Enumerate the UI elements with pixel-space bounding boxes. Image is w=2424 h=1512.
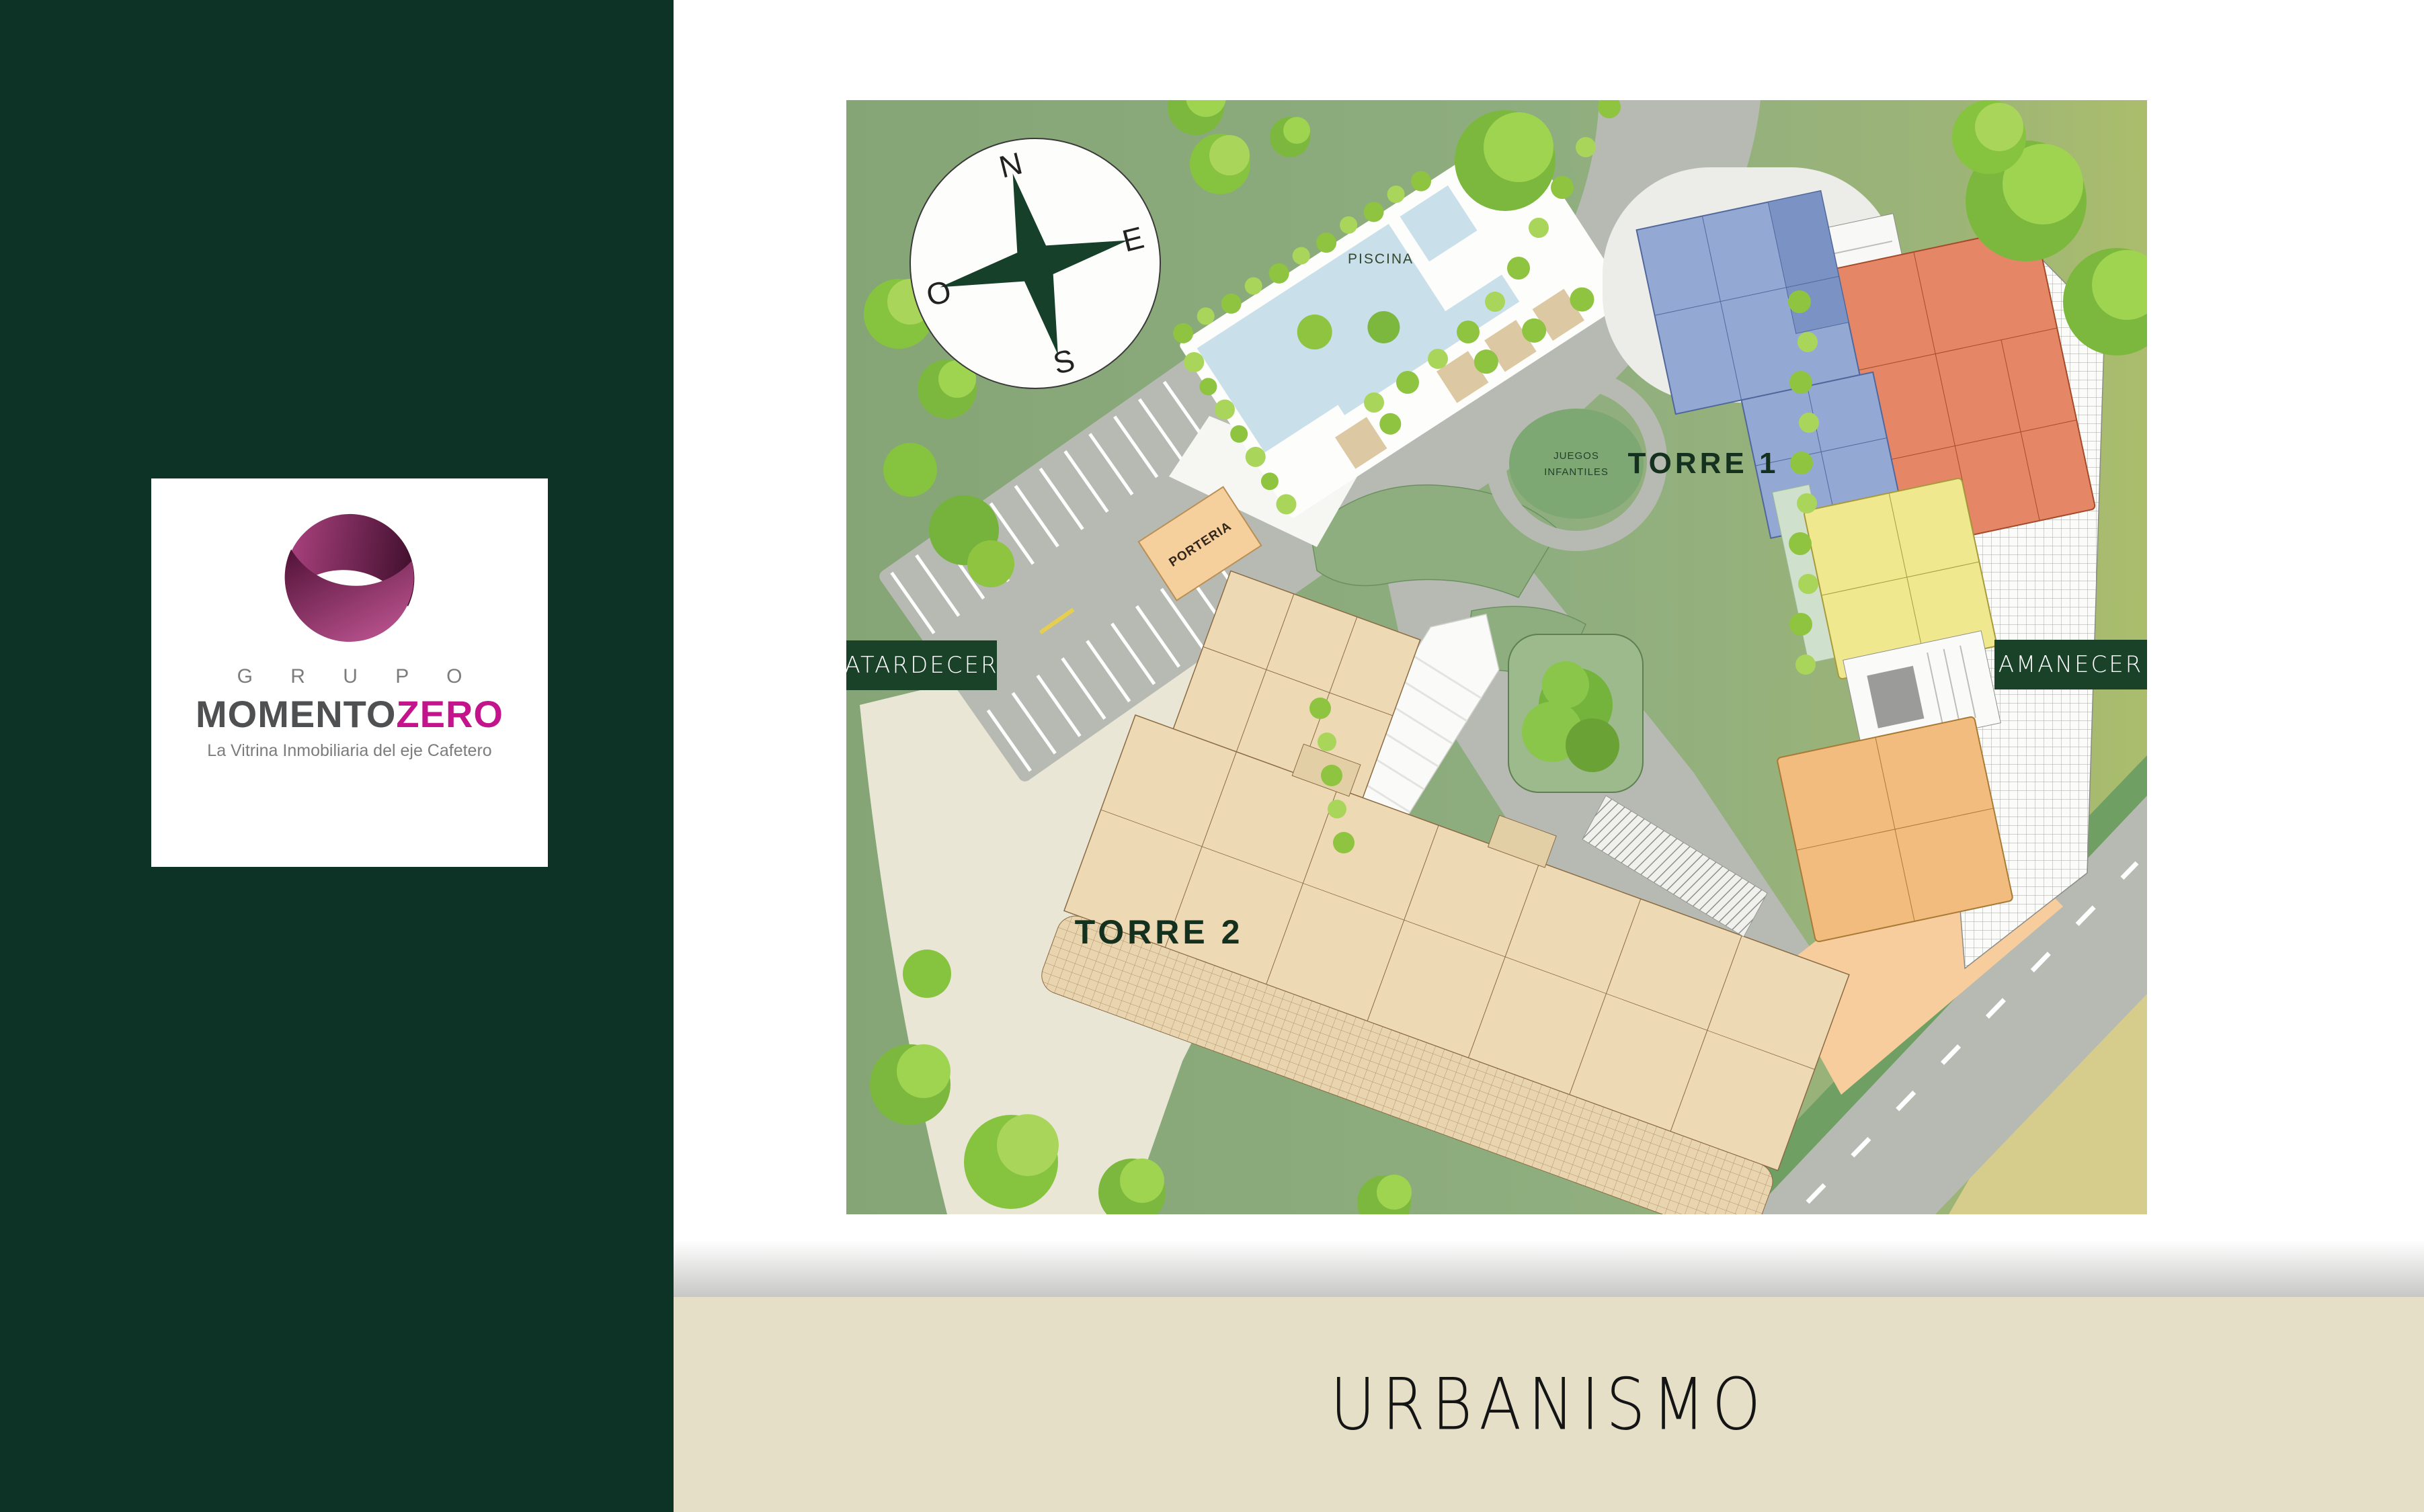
amanecer-badge: AMANECER (1994, 640, 2147, 689)
piscina-label: PISCINA (1348, 251, 1414, 267)
juegos-label-line2: INFANTILES (1544, 466, 1609, 478)
footer-bar: URBANISMO (674, 1297, 2424, 1512)
brand-logo-card: G R U P O MOMENTOZERO La Vitrina Inmobil… (151, 478, 548, 867)
brand-tagline: La Vitrina Inmobiliaria del eje Cafetero (207, 741, 491, 761)
atardecer-badge: ATARDECER (846, 640, 997, 690)
tree-planter (1508, 634, 1643, 792)
footer-shadow (674, 1240, 2424, 1297)
brand-zero: ZERO (396, 693, 503, 735)
momento-zero-swirl-icon (272, 504, 427, 652)
juegos-area (1509, 409, 1644, 519)
brand-momento: MOMENTO (196, 693, 396, 735)
slide-urbanismo: G R U P O MOMENTOZERO La Vitrina Inmobil… (0, 0, 2424, 1512)
torre1-label: TORRE 1 (1628, 447, 1779, 480)
site-plan-map: JUEGOS INFANTILES (846, 100, 2147, 1214)
sidebar-panel: G R U P O MOMENTOZERO La Vitrina Inmobil… (0, 0, 674, 1512)
juegos-label-line1: JUEGOS (1553, 450, 1599, 462)
torre2-label: TORRE 2 (1075, 913, 1244, 951)
site-plan-illustration: JUEGOS INFANTILES (846, 100, 2147, 1214)
brand-name: MOMENTOZERO (196, 692, 503, 736)
torre1-unit-orange (1777, 716, 2013, 942)
brand-grupo: G R U P O (221, 665, 479, 688)
page-title: URBANISMO (1330, 1363, 1768, 1445)
